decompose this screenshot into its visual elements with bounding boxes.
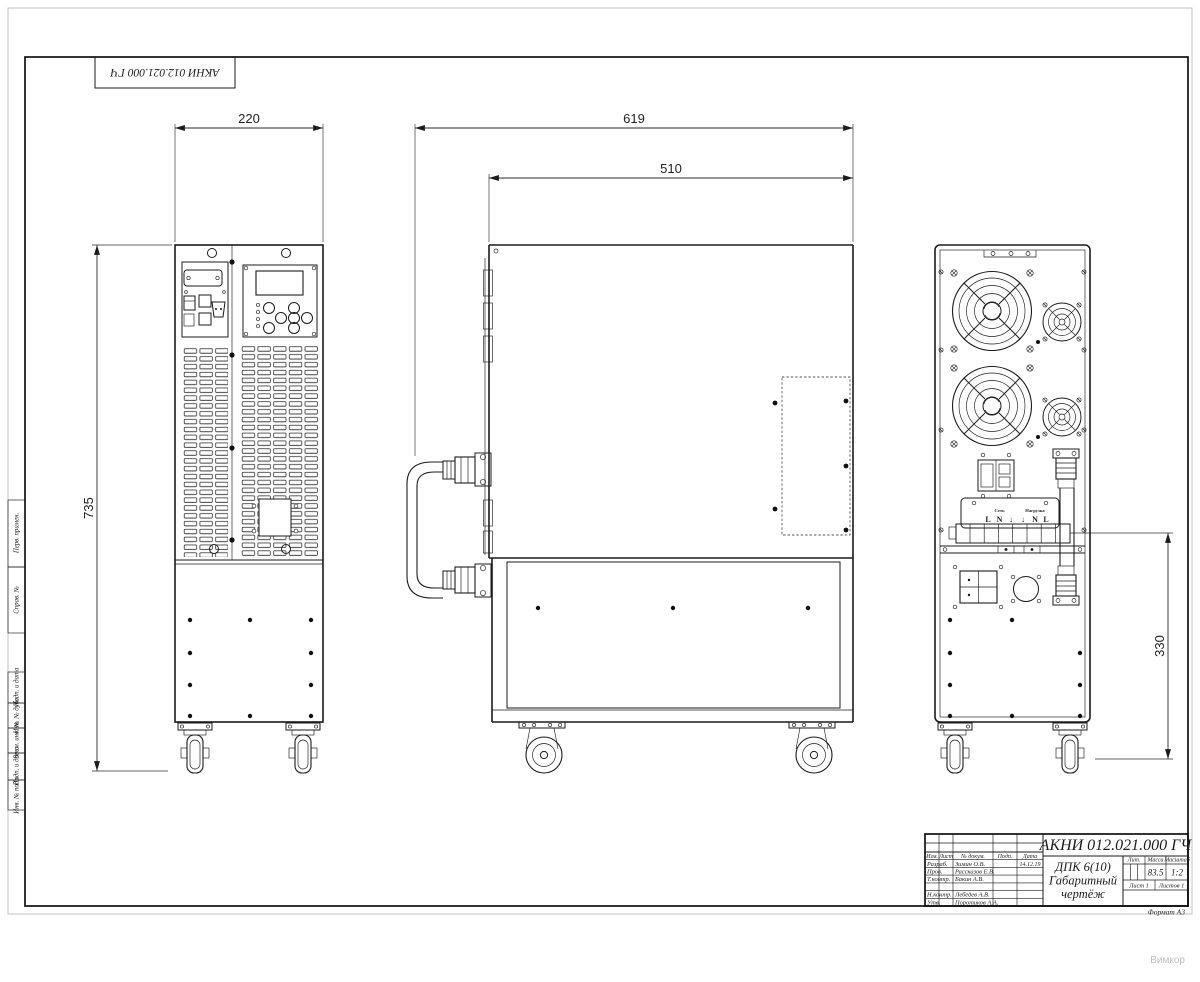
col-izm: Изм. xyxy=(925,854,938,860)
dim-height-overall: 735 xyxy=(81,497,96,519)
caster xyxy=(938,723,972,773)
dim-terminal-height: 330 xyxy=(1152,635,1167,657)
rear-lower-panel xyxy=(948,618,1082,718)
role: Пров. xyxy=(926,869,943,876)
margin-label: Инв. № подл. xyxy=(14,776,21,815)
person-name: Бакин А.В. xyxy=(954,876,984,883)
title-block: Изм. Лист № докум. Подп. Дата Разраб. Зи… xyxy=(925,834,1192,906)
product-name: ДПК 6(10) xyxy=(1054,860,1110,874)
caster xyxy=(789,722,835,773)
terminal-block: Сеть Нагрузка L N ↓ ↓ N L xyxy=(949,498,1070,543)
rear-cable xyxy=(1053,449,1079,605)
dim-depth-body: 510 xyxy=(660,161,682,176)
mass-value: 83.5 xyxy=(1148,868,1164,878)
sign-date: 14.12.19 xyxy=(1020,861,1041,868)
terminal-pin-label: ↓ xyxy=(1009,515,1013,524)
front-lower-panel xyxy=(188,618,313,718)
col-data: Дата xyxy=(1022,854,1037,860)
large-fan xyxy=(953,272,1032,351)
terminal-pin-label: N xyxy=(997,515,1003,524)
lcd-display xyxy=(256,271,303,295)
col-docnum: № докум. xyxy=(960,853,985,860)
panel-button xyxy=(302,313,313,324)
role: Утв. xyxy=(927,899,941,906)
terminal-pin-label: L xyxy=(985,515,990,524)
caster xyxy=(519,722,565,773)
rear-divider xyxy=(940,546,1085,553)
role: Разраб. xyxy=(926,861,948,868)
watermark: Вимкор xyxy=(1150,955,1185,966)
caster xyxy=(178,723,212,773)
panel-button xyxy=(264,303,275,314)
panel-button xyxy=(289,313,300,324)
cable-connector xyxy=(443,453,491,486)
battery-cable-loop xyxy=(407,453,491,598)
mass-label: Масса xyxy=(1146,858,1163,864)
front-io-panel xyxy=(182,262,228,337)
margin-label: Перв. примен. xyxy=(14,513,21,555)
panel-button xyxy=(264,323,275,334)
front-vent-grid xyxy=(183,345,319,557)
terminal-pin-label: L xyxy=(1043,515,1048,524)
doc-number-rotated-box: АКНИ 012.021.000 ГЧ xyxy=(95,57,235,88)
person-name: Лебедев А.В. xyxy=(954,892,990,899)
doc-type-line2: чертёж xyxy=(1061,887,1105,901)
db9-connector xyxy=(212,302,225,317)
output-breaker xyxy=(953,565,1003,609)
sheets-total: Листов 1 xyxy=(1158,883,1185,890)
sheet-number: Лист 1 xyxy=(1128,883,1149,890)
role: Н.контр. xyxy=(926,892,952,899)
role: Т.контр. xyxy=(927,876,951,883)
small-fan xyxy=(1043,398,1081,436)
dim-front-width: 220 xyxy=(238,111,260,126)
caster xyxy=(1053,723,1087,773)
dim-depth-overall: 619 xyxy=(623,111,645,126)
large-fan xyxy=(953,367,1032,446)
round-connector-port xyxy=(1011,575,1041,603)
scale-value: 1:2 xyxy=(1171,868,1183,878)
format-label: Формат А3 xyxy=(1148,908,1186,917)
panel-button xyxy=(276,313,287,324)
front-control-panel xyxy=(243,265,317,337)
doc-number-rotated: АКНИ 012.021.000 ГЧ xyxy=(109,66,220,78)
masshtab-label: Масштаб xyxy=(1163,857,1191,864)
doc-number: АКНИ 012.021.000 ГЧ xyxy=(1039,837,1193,854)
cable-connector xyxy=(443,564,491,597)
col-list: Лист xyxy=(938,854,954,860)
margin-label: Справ. № xyxy=(14,586,21,614)
side-hidden-panel xyxy=(773,377,850,535)
caster xyxy=(286,723,320,773)
terminal-pin-label: ↓ xyxy=(1021,515,1025,524)
side-view xyxy=(407,245,853,773)
terminal-group-output: Нагрузка xyxy=(1025,508,1045,513)
person-name: Рассказов Е.В. xyxy=(954,869,995,876)
drawing-sheet: Перв. примен. Справ. № Подп. и дата Инв.… xyxy=(0,0,1200,982)
input-breaker xyxy=(978,453,1014,498)
front-view xyxy=(175,245,323,773)
col-podp: Подп. xyxy=(997,853,1013,860)
panel-button xyxy=(289,303,300,314)
person-name: Поротиков А.А. xyxy=(954,899,999,906)
panel-button xyxy=(289,323,300,334)
margin-column: Перв. примен. Справ. № Подп. и дата Инв.… xyxy=(8,500,25,815)
small-fan xyxy=(1043,303,1081,341)
rear-view: Сеть Нагрузка L N ↓ ↓ N L xyxy=(935,245,1090,773)
side-lower-box xyxy=(489,558,853,722)
lit-label: Лит. xyxy=(1127,858,1141,864)
doc-type-line1: Габаритный xyxy=(1048,874,1118,888)
terminal-group-input: Сеть xyxy=(994,508,1005,513)
gost-drawing: Перв. примен. Справ. № Подп. и дата Инв.… xyxy=(0,0,1200,982)
person-name: Зимин О.В. xyxy=(955,861,986,868)
terminal-pin-label: N xyxy=(1032,515,1038,524)
